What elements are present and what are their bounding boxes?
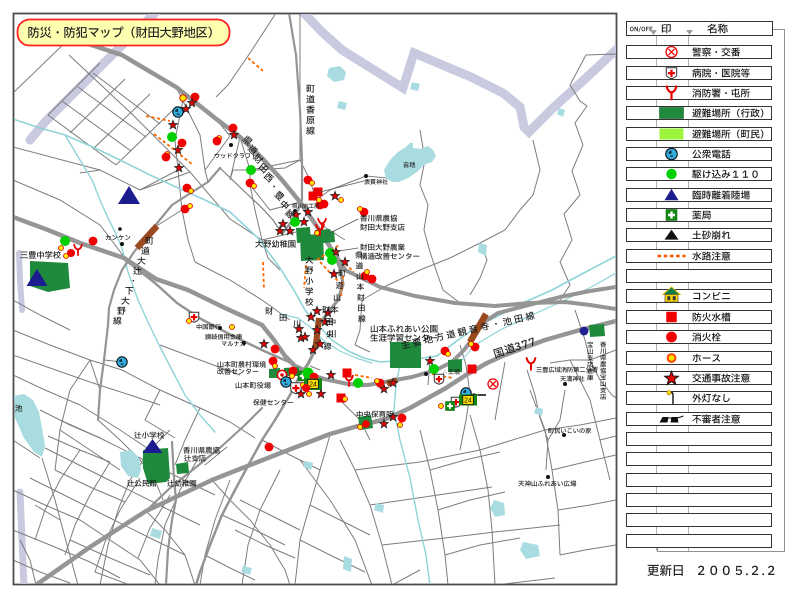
svg-text:24: 24: [464, 398, 472, 405]
svg-text:24: 24: [309, 382, 317, 389]
